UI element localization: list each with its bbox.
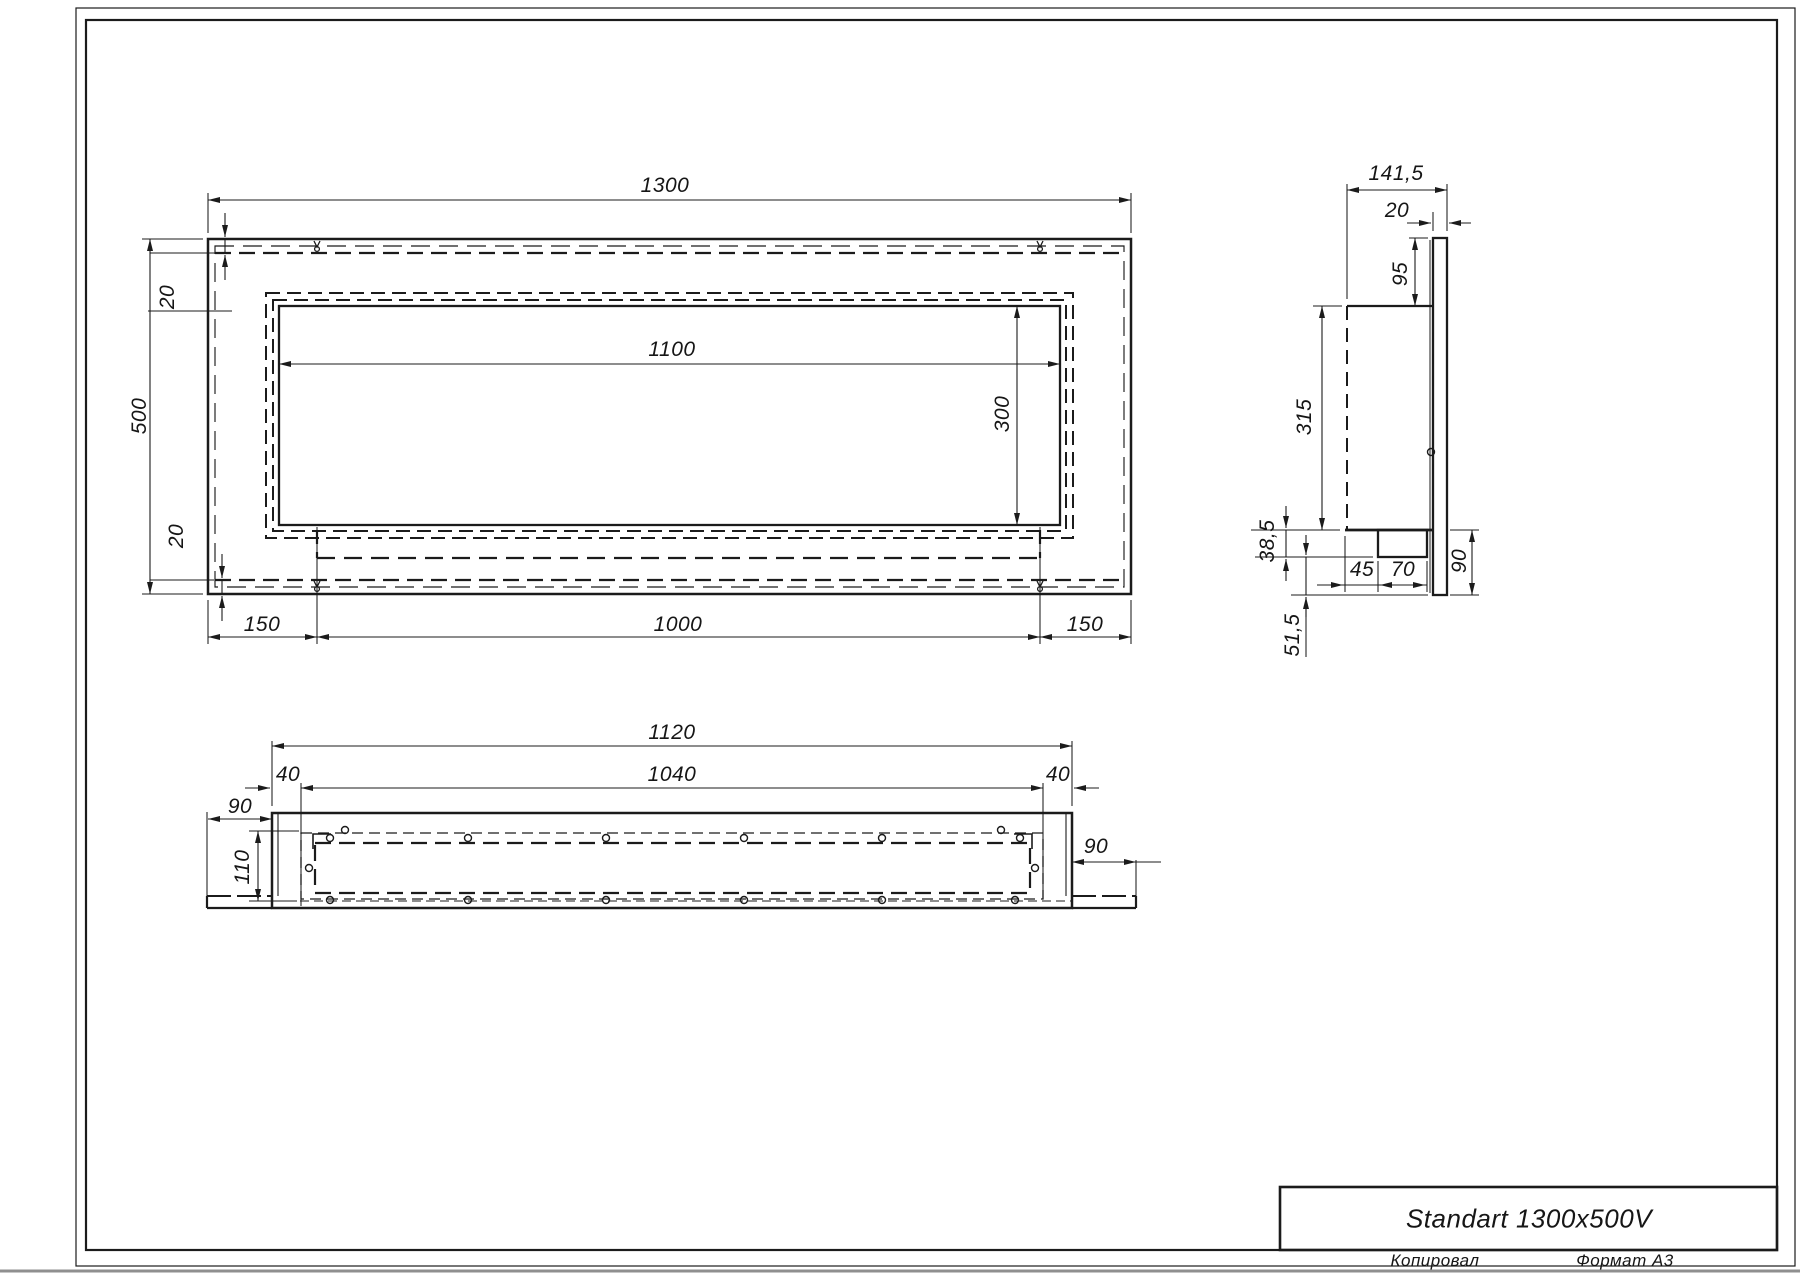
dim-side-panel-below: 90 bbox=[1448, 549, 1472, 573]
dim-side-overall-depth: 141,5 bbox=[1368, 162, 1423, 186]
dim-front-opening-height: 300 bbox=[991, 396, 1015, 433]
dim-plan-ext-right: 90 bbox=[1084, 835, 1108, 859]
dim-side-tray-offset: 45 bbox=[1350, 558, 1374, 582]
dim-side-top-drop: 95 bbox=[1389, 262, 1413, 286]
dim-plan-ext-left: 90 bbox=[228, 795, 252, 819]
drawing-sheet: 1300 500 20 20 1100 300 150 1000 150 141… bbox=[0, 0, 1800, 1273]
dim-plan-inset-left: 40 bbox=[276, 763, 300, 787]
dim-side-tray-width: 70 bbox=[1391, 558, 1415, 582]
dim-front-offset-right: 150 bbox=[1067, 613, 1104, 637]
dim-side-panel-thickness: 20 bbox=[1385, 199, 1409, 223]
dim-front-margin-top: 20 bbox=[156, 285, 180, 309]
dim-side-tray-height: 38,5 bbox=[1256, 520, 1280, 563]
dim-plan-inner-width: 1040 bbox=[648, 763, 697, 787]
dim-front-margin-bottom: 20 bbox=[165, 524, 189, 548]
dim-front-opening-width: 1100 bbox=[648, 338, 695, 362]
copied-by-label: Копировал bbox=[1390, 1251, 1479, 1271]
side-view bbox=[1251, 184, 1479, 657]
dim-plan-inset-right: 40 bbox=[1046, 763, 1070, 787]
dim-side-body-height: 315 bbox=[1293, 399, 1317, 436]
page-frame bbox=[0, 8, 1800, 1271]
dim-plan-body-width: 1120 bbox=[648, 721, 695, 745]
product-title: Standart 1300x500V bbox=[1406, 1204, 1652, 1235]
dim-front-overall-height: 500 bbox=[128, 398, 152, 435]
dim-plan-inner-depth: 110 bbox=[231, 850, 255, 885]
dim-front-offset-left: 150 bbox=[244, 613, 281, 637]
format-label: Формат А3 bbox=[1576, 1251, 1674, 1271]
dim-front-span-center: 1000 bbox=[654, 613, 703, 637]
dim-front-overall-width: 1300 bbox=[641, 174, 690, 198]
front-view bbox=[142, 193, 1131, 644]
dim-side-bottom-gap: 51,5 bbox=[1281, 614, 1305, 657]
